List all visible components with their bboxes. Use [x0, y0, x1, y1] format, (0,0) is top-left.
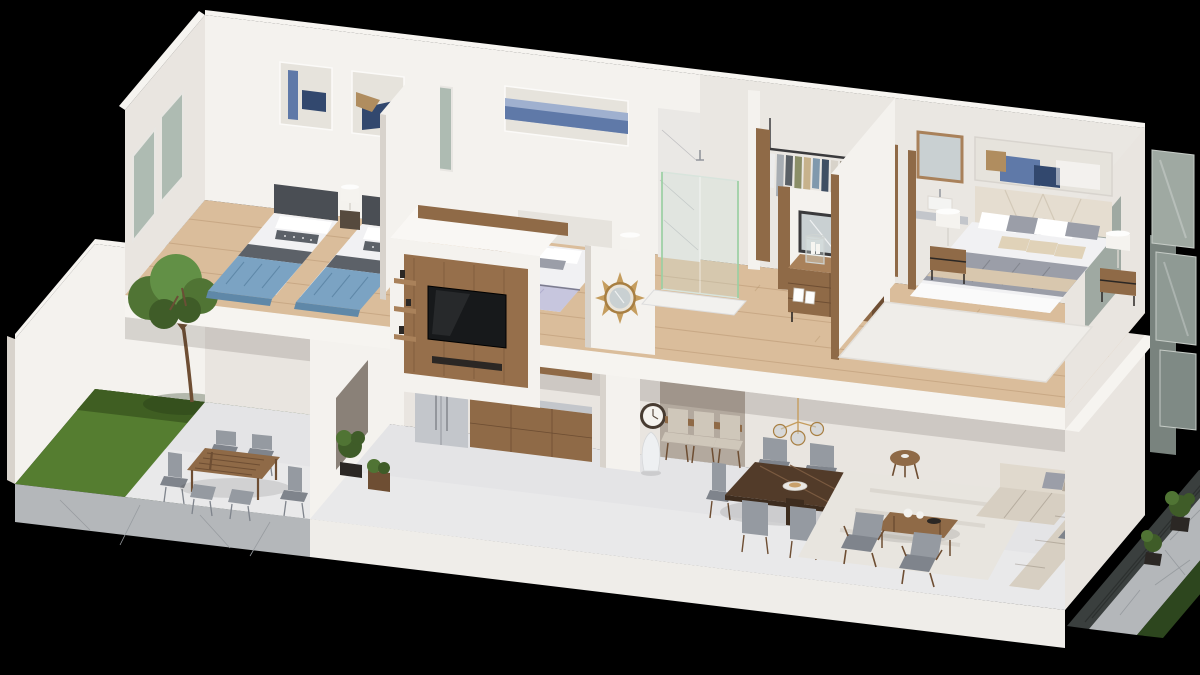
- house-cutaway-rendering: [0, 0, 1200, 675]
- closet-side-panel: [756, 128, 770, 262]
- jar: [904, 509, 913, 518]
- sofa-pillow: [1042, 472, 1066, 490]
- courtyard-left-wall-outer: [7, 336, 15, 484]
- partition-wood-edge: [831, 174, 839, 360]
- kids-nightstand: [340, 210, 360, 230]
- vanity-side-panel: [908, 150, 916, 290]
- wall-clock: [640, 403, 666, 429]
- room-partition-edge: [380, 114, 386, 300]
- jar: [916, 511, 924, 519]
- planter-boxes: [367, 459, 390, 492]
- vanity-mirror: [918, 132, 962, 182]
- bread: [789, 483, 801, 488]
- bowl: [927, 518, 941, 524]
- mirror-partition: [585, 245, 655, 355]
- candle-hurricane: [806, 235, 824, 264]
- glass-panel: [1160, 350, 1196, 430]
- floorplan-render-stage: [0, 0, 1200, 675]
- glass-panels: [1150, 150, 1196, 455]
